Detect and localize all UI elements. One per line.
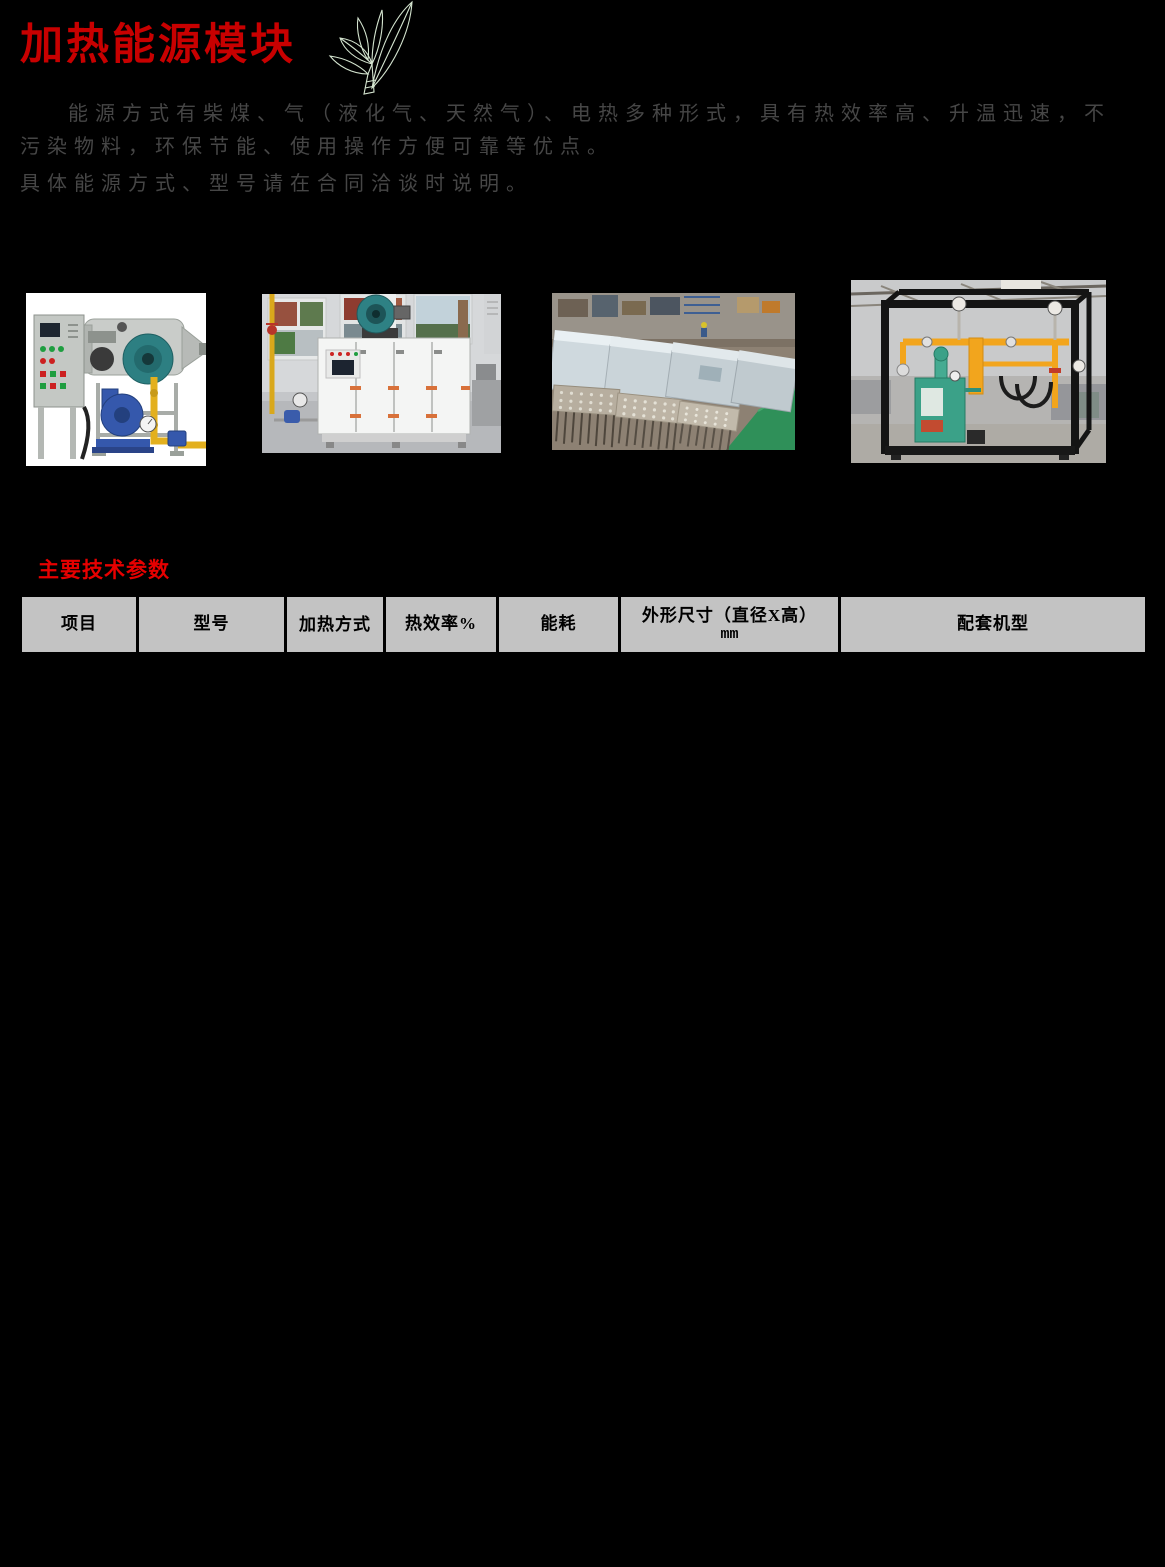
col-energy-consumption: 能耗 [498, 596, 620, 654]
col-heating-method: 加热方式 [286, 596, 385, 654]
gas-heating-oven-showroom-photo [262, 294, 501, 453]
col-thermal-efficiency: 热效率% [385, 596, 498, 654]
diesel-coal-hot-air-furnace-photo [26, 293, 206, 466]
col-item: 项目 [21, 596, 138, 654]
tea-leaf-sketch-icon [300, 0, 426, 96]
specs-section-title: 主要技术参数 [38, 554, 170, 584]
col-dimensions-unit: mm [625, 627, 834, 643]
gas-manifold-illustration [851, 280, 1106, 463]
gas-manifold-skid-photo [851, 280, 1106, 463]
col-matching-machine: 配套机型 [840, 596, 1147, 654]
page-title: 加热能源模块 [20, 22, 296, 69]
intro-line-3: 具体能源方式、型号请在合同洽谈时说明。 [20, 167, 533, 196]
oven-showroom-illustration [262, 294, 501, 453]
col-model: 型号 [138, 596, 286, 654]
intro-line-1: 能源方式有柴煤、气（液化气、天然气）、电热多种形式，具有热效率高、升温迅速，不 [20, 97, 1111, 126]
electric-heating-units-workshop-photo [552, 293, 795, 450]
col-dimensions: 外形尺寸（直径X高） mm [620, 596, 840, 654]
specs-table-header-row: 项目 型号 加热方式 热效率% 能耗 外形尺寸（直径X高） mm 配套机型 [21, 596, 1147, 654]
intro-line-2: 污染物料，环保节能、使用操作方便可靠等优点。 [20, 130, 614, 159]
page-background: 加热能源模块 能源方式有柴煤、气（液化气、天然气）、电热多种形式，具有热效率高、… [0, 0, 1165, 1567]
electric-heaters-illustration [552, 293, 795, 450]
hot-air-furnace-illustration [26, 293, 206, 466]
specs-table: 项目 型号 加热方式 热效率% 能耗 外形尺寸（直径X高） mm 配套机型 [19, 594, 1148, 655]
